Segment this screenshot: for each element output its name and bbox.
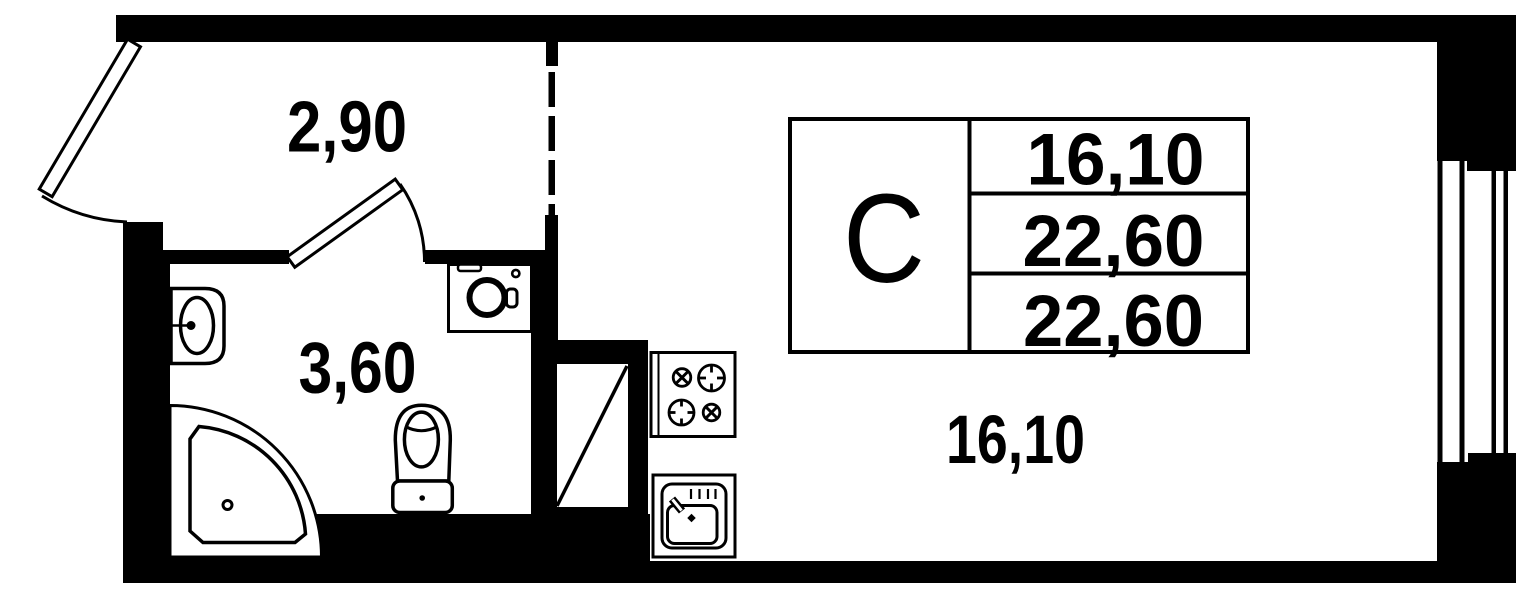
svg-text:2,90: 2,90: [287, 88, 407, 168]
svg-text:16,10: 16,10: [946, 401, 1085, 478]
svg-text:16,10: 16,10: [1027, 120, 1205, 201]
svg-text:22,60: 22,60: [1023, 281, 1204, 362]
svg-text:3,60: 3,60: [299, 329, 417, 409]
svg-text:22,60: 22,60: [1023, 201, 1205, 282]
svg-text:С: С: [843, 168, 925, 309]
